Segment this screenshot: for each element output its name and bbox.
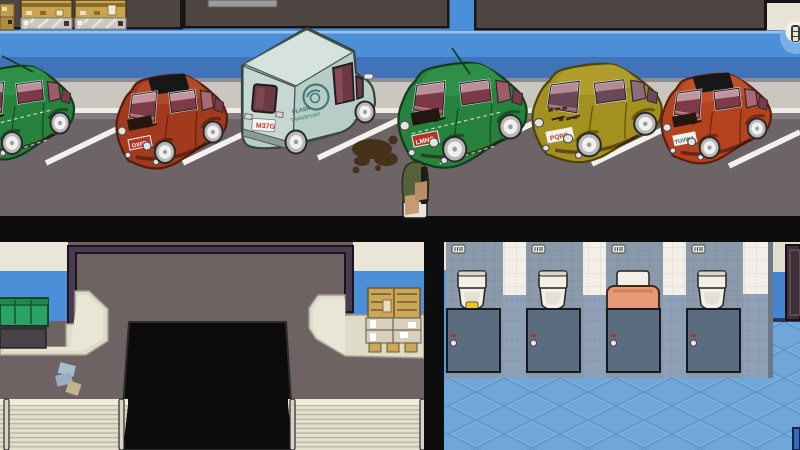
svg-text:M37G: M37G <box>256 123 276 131</box>
